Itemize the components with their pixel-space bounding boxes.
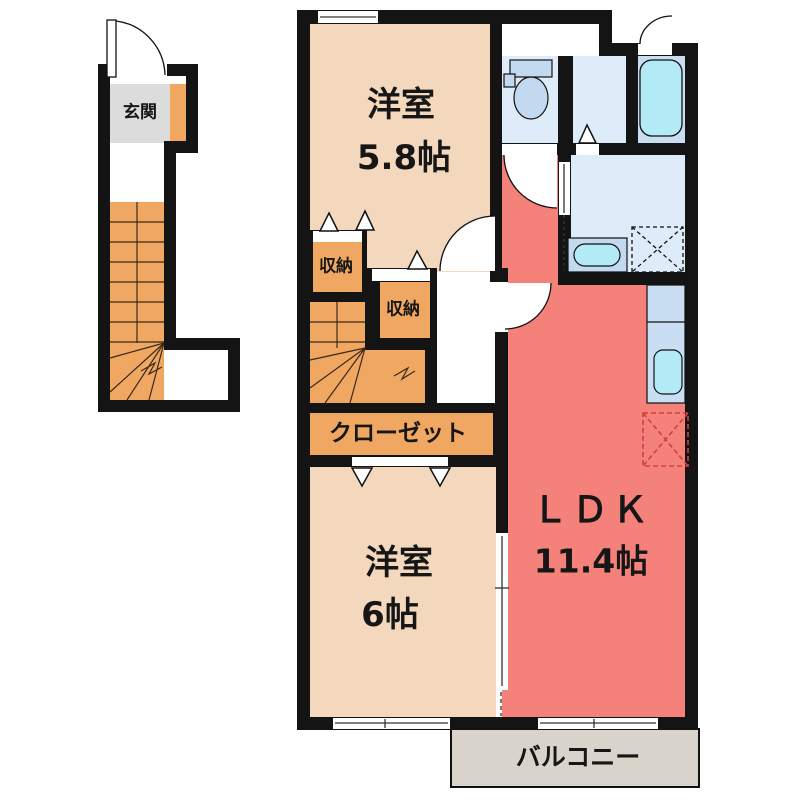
ldk-size: 11.4帖 — [534, 545, 648, 578]
washer-pan — [632, 227, 683, 272]
western-room-2-label: 洋室 — [365, 546, 433, 580]
toilet-fixture — [504, 60, 552, 119]
closet-label: クローゼット — [329, 423, 467, 446]
room1-door — [440, 216, 495, 271]
stairs-1f-treads — [110, 202, 164, 400]
kitchen-counter — [647, 285, 685, 403]
toilet-door — [504, 155, 557, 208]
storage-2-label: 収納 — [386, 302, 420, 319]
balcony-label: バルコニー — [516, 745, 641, 770]
ldk-label: ＬＤＫ — [532, 493, 652, 529]
kitchen-sink-fixture — [654, 350, 682, 394]
genkan-label: 玄関 — [123, 105, 157, 122]
stairs-2f-direction-arrow — [394, 368, 415, 379]
western-room-2-size: 6帖 — [361, 598, 419, 632]
storage-1-label: 収納 — [319, 259, 353, 276]
entry-door-leaf — [107, 20, 116, 77]
floor-plan: 玄関 洋室 5.8帖 収納 収納 クローゼット 洋室 6帖 ＬＤＫ 11.4帖 … — [0, 0, 800, 800]
western-room-1-size: 5.8帖 — [357, 141, 451, 175]
fridge-space — [643, 413, 688, 466]
western-room-1-label: 洋室 — [367, 88, 435, 122]
ldk-door — [505, 283, 551, 329]
vanity-sink-fixture — [568, 238, 627, 272]
bathtub-fixture — [640, 60, 682, 136]
